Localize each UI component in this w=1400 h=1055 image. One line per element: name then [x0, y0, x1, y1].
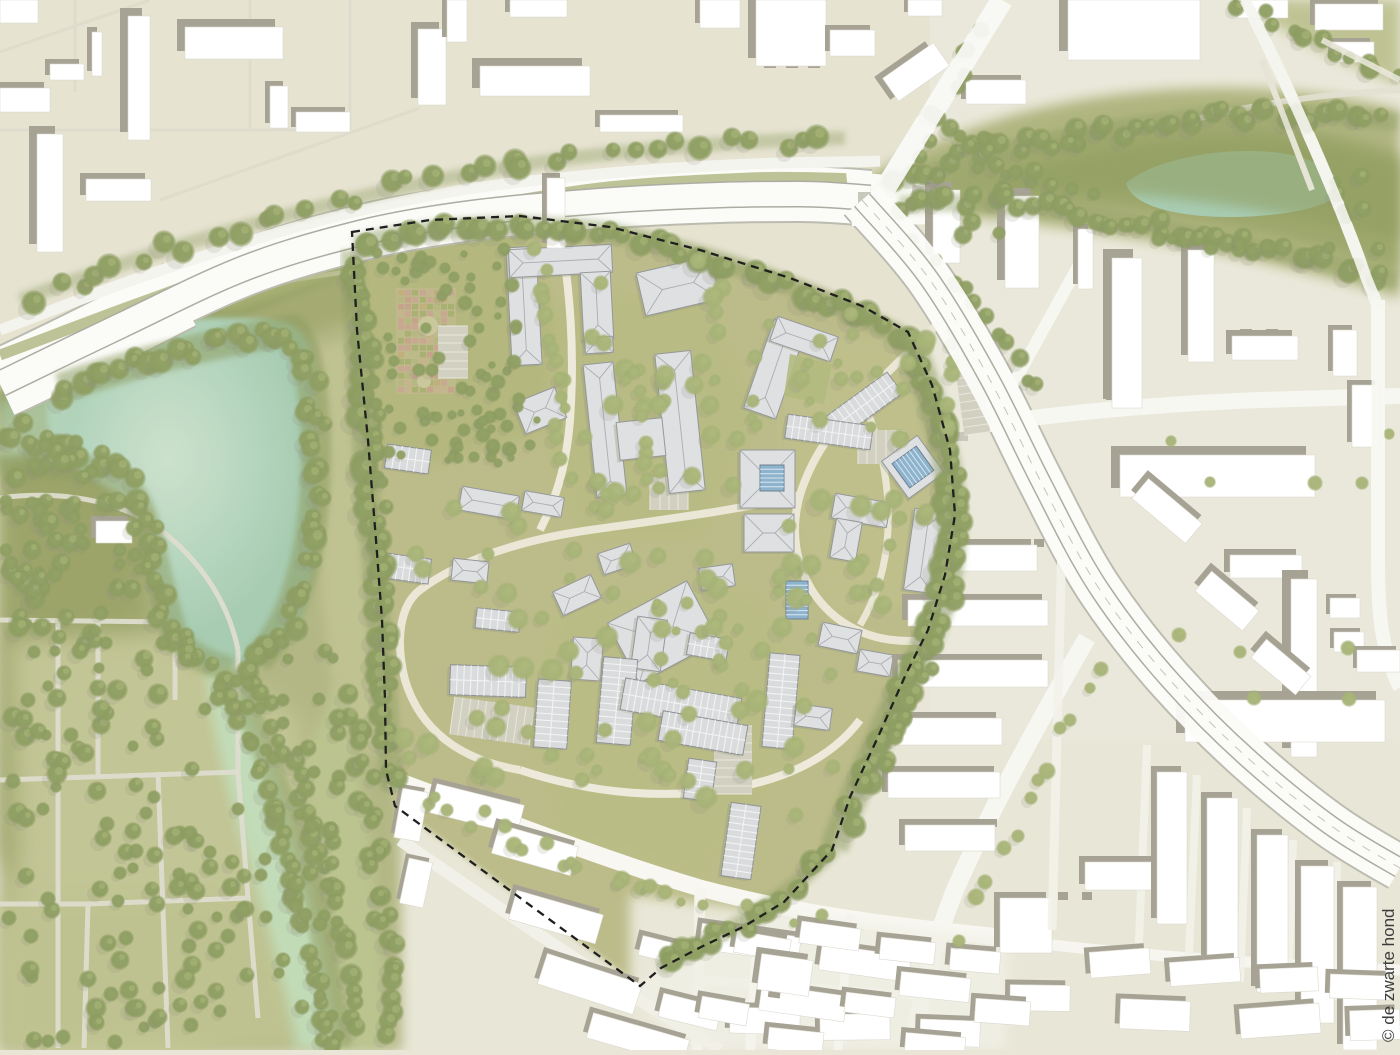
svg-text:© de zwarte hond: © de zwarte hond — [1379, 909, 1398, 1043]
